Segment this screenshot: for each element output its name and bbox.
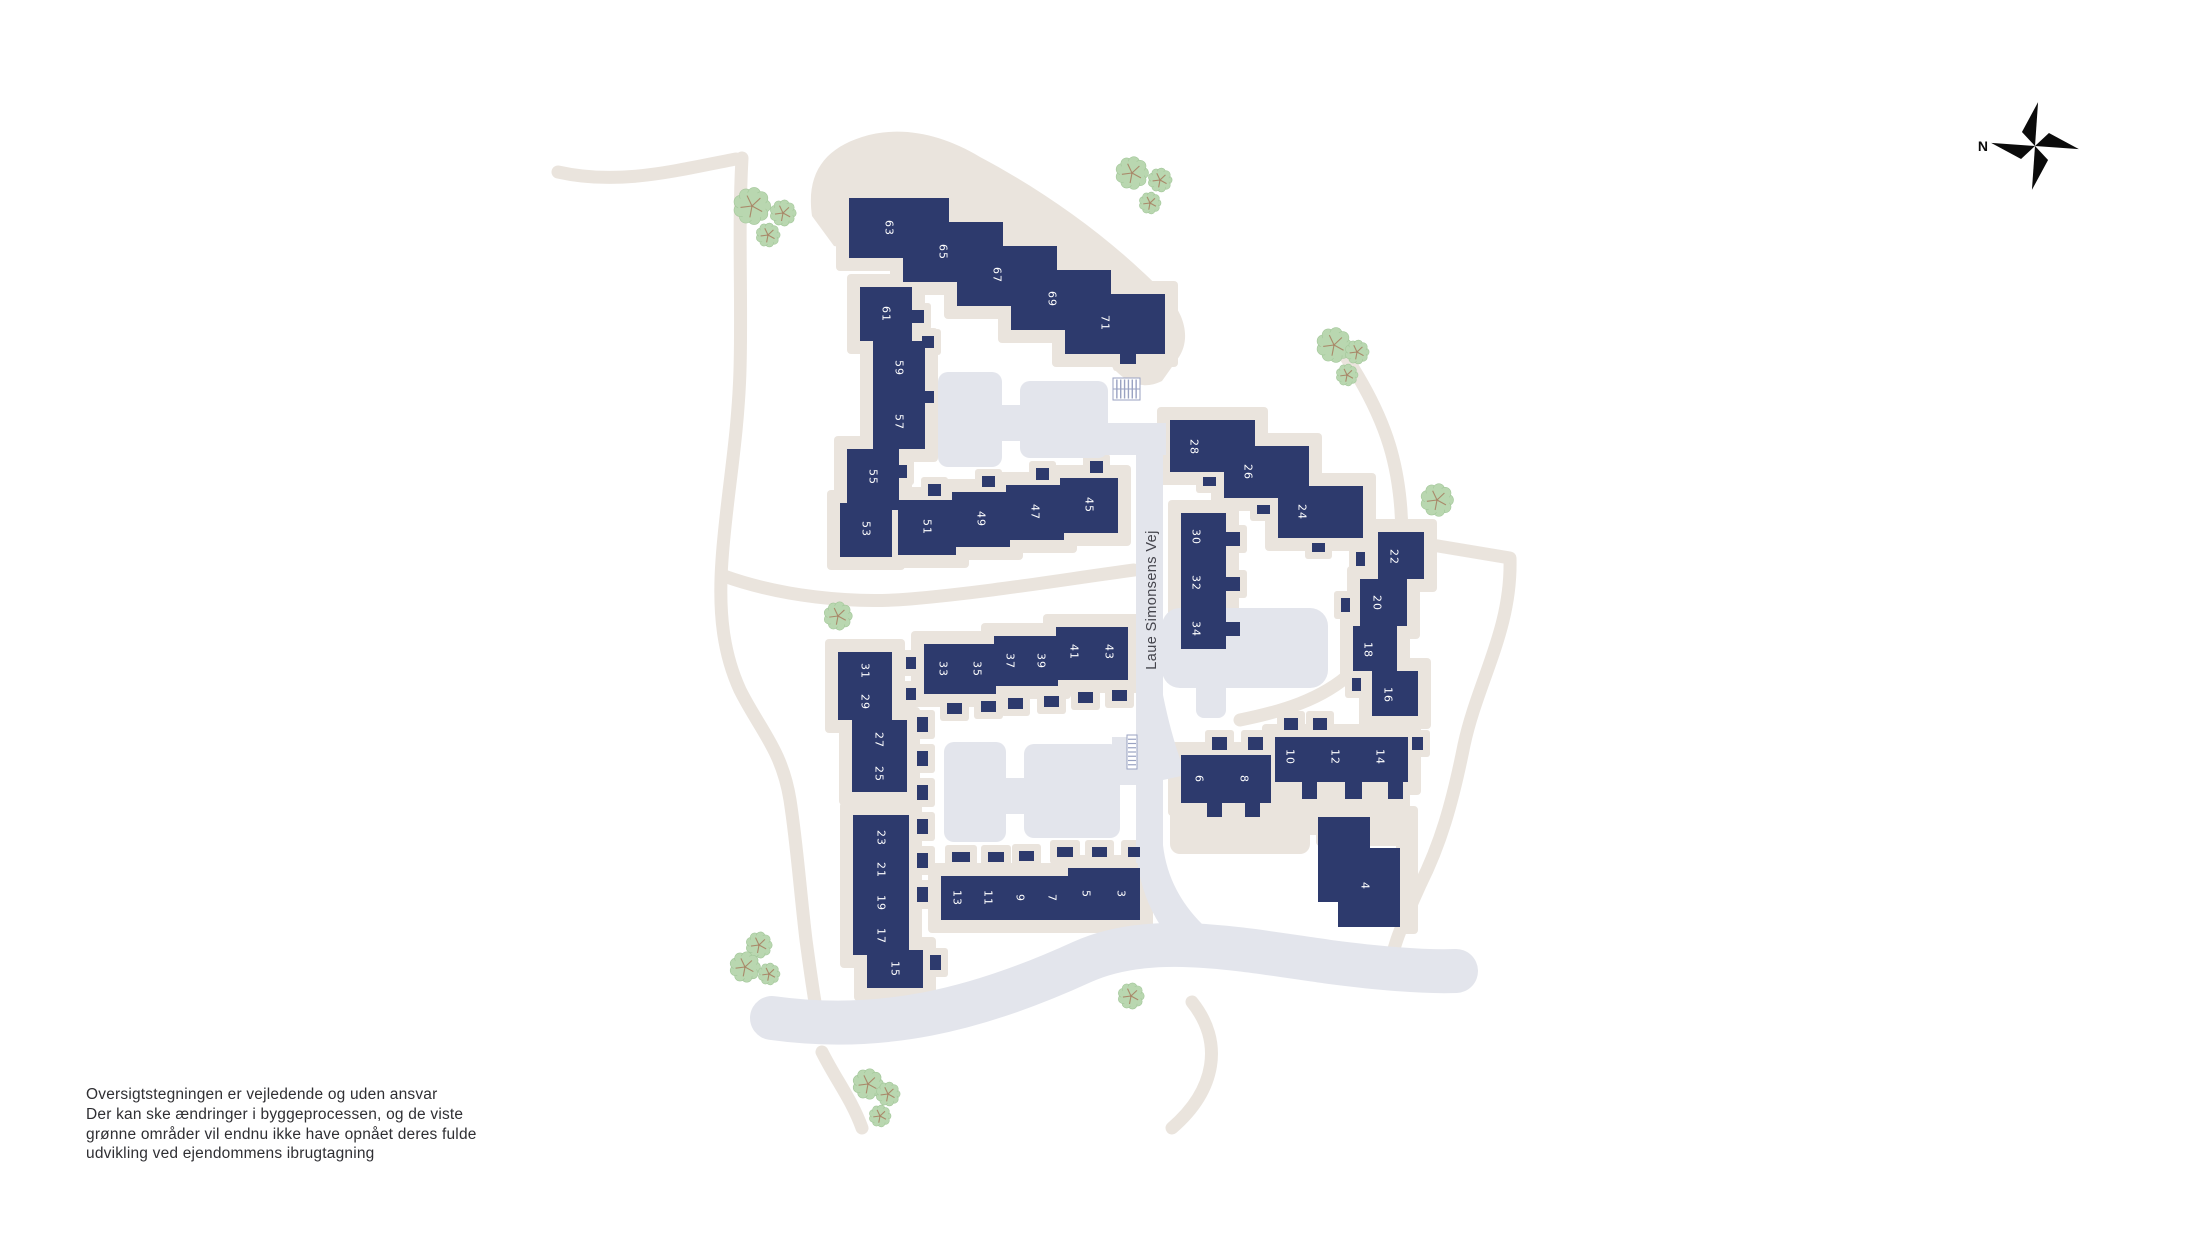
- disclaimer-line-3: grønne områder vil endnu ikke have opnåe…: [86, 1125, 477, 1145]
- building-number-5: 5: [1080, 890, 1093, 898]
- shed: [1203, 477, 1216, 486]
- building-number-24: 24: [1296, 504, 1309, 520]
- tree-icon: [1336, 364, 1358, 386]
- building-number-11: 11: [982, 890, 995, 906]
- building-number-61: 61: [880, 306, 893, 322]
- building-number-20: 20: [1371, 595, 1384, 611]
- building-number-39: 39: [1035, 653, 1048, 669]
- building-number-47: 47: [1029, 504, 1042, 520]
- shed: [1226, 532, 1240, 546]
- tree-icon: [824, 602, 852, 630]
- shed: [912, 310, 924, 323]
- building-30[interactable]: [1181, 513, 1226, 558]
- shed: [922, 336, 934, 348]
- building-number-49: 49: [975, 511, 988, 527]
- shed: [1341, 598, 1350, 612]
- building-number-15: 15: [889, 961, 902, 977]
- shed: [1008, 698, 1023, 709]
- building-number-22: 22: [1388, 549, 1401, 565]
- shed: [1092, 847, 1107, 857]
- plaza-mid-right-arm: [1196, 680, 1226, 718]
- shed: [1345, 782, 1362, 799]
- shed: [1388, 782, 1403, 799]
- shed: [982, 476, 995, 487]
- shed: [1207, 803, 1222, 817]
- building-12[interactable]: [1320, 737, 1365, 782]
- building-number-41: 41: [1068, 644, 1081, 660]
- site-plan-page: 6365676971615957555351494745282624303234…: [0, 0, 2200, 1237]
- shed: [917, 853, 928, 868]
- shed: [1012, 304, 1028, 316]
- building-number-3: 3: [1115, 890, 1128, 898]
- building-number-7: 7: [1046, 894, 1059, 902]
- building-number-25: 25: [873, 766, 886, 782]
- path-top-left: [558, 159, 736, 177]
- building-24[interactable]: [1278, 486, 1363, 538]
- disclaimer-line-4: udvikling ved ejendommens ibrugtagning: [86, 1144, 477, 1164]
- plaza-upper-left-room: [938, 372, 1002, 467]
- building-number-13: 13: [951, 890, 964, 906]
- shed: [988, 852, 1004, 862]
- shed: [1284, 718, 1298, 730]
- building-number-12: 12: [1329, 749, 1342, 765]
- building-number-32: 32: [1190, 575, 1203, 591]
- shed: [917, 751, 928, 766]
- building-number-71: 71: [1099, 315, 1112, 331]
- shed: [1356, 552, 1365, 566]
- plaza-lower: [944, 737, 1146, 842]
- building-number-37: 37: [1004, 653, 1017, 669]
- building-number-33: 33: [937, 661, 950, 677]
- building-number-35: 35: [971, 661, 984, 677]
- tree-icon: [1116, 157, 1148, 190]
- shed: [981, 701, 996, 712]
- building-number-28: 28: [1188, 439, 1201, 455]
- plaza-upper-right-room: [1020, 381, 1108, 458]
- shed: [1226, 622, 1240, 636]
- tree-icon: [756, 223, 780, 247]
- building-number-8: 8: [1238, 775, 1251, 783]
- building-number-51: 51: [921, 519, 934, 535]
- shed: [930, 955, 941, 970]
- building-number-43: 43: [1103, 644, 1116, 660]
- tree-icon: [876, 1082, 900, 1106]
- shed: [1248, 737, 1263, 750]
- shed: [947, 703, 962, 714]
- building-number-26: 26: [1242, 464, 1255, 480]
- building-number-31: 31: [859, 663, 872, 679]
- shed: [917, 785, 928, 800]
- building-number-18: 18: [1362, 642, 1375, 658]
- shed: [1212, 737, 1227, 750]
- building-number-19: 19: [875, 895, 888, 911]
- shed: [952, 852, 970, 862]
- building-number-57: 57: [893, 414, 906, 430]
- building-number-29: 29: [859, 694, 872, 710]
- building-number-30: 30: [1190, 529, 1203, 545]
- shed: [958, 280, 974, 292]
- shed: [928, 484, 941, 496]
- tree-icon: [869, 1105, 891, 1127]
- shed: [1352, 678, 1361, 691]
- disclaimer-text: Oversigtstegningen er vejledende og uden…: [86, 1085, 477, 1164]
- tree-icon: [1118, 983, 1144, 1009]
- shed: [906, 688, 916, 700]
- tree-icon: [1148, 168, 1172, 192]
- shed: [1057, 847, 1073, 857]
- building-number-16: 16: [1382, 687, 1395, 703]
- building-10[interactable]: [1275, 737, 1320, 782]
- shed: [906, 657, 916, 669]
- shed: [1302, 782, 1317, 799]
- building-number-17: 17: [875, 928, 888, 944]
- shed: [904, 256, 920, 268]
- plaza-lower-left-room: [944, 742, 1006, 842]
- shed: [1245, 803, 1260, 817]
- tree-icon: [730, 952, 760, 982]
- building-number-67: 67: [991, 267, 1004, 283]
- shed: [1226, 577, 1240, 591]
- shed: [1044, 696, 1059, 707]
- shed: [1036, 468, 1049, 480]
- building-number-59: 59: [893, 360, 906, 376]
- bike-rack-icon: [1127, 735, 1137, 769]
- shed: [1019, 851, 1034, 861]
- bike-rack-icon: [1113, 378, 1140, 400]
- building-number-9: 9: [1014, 894, 1027, 902]
- shed: [897, 465, 907, 478]
- shed: [917, 887, 928, 902]
- shed: [1128, 847, 1140, 857]
- building-number-45: 45: [1083, 497, 1096, 513]
- shed: [1066, 328, 1082, 340]
- compass-rose: N: [1975, 98, 2082, 193]
- disclaimer-line-2: Der kan ske ændringer i byggeprocessen, …: [86, 1105, 477, 1125]
- street-label: Laue Simonsens Vej: [1144, 530, 1160, 669]
- building-number-10: 10: [1284, 749, 1297, 765]
- tree-icon: [770, 200, 796, 226]
- building-number-23: 23: [875, 830, 888, 846]
- compass-star-icon: [1988, 99, 2082, 193]
- building-32[interactable]: [1181, 558, 1226, 603]
- shed: [924, 391, 934, 403]
- shed: [917, 819, 928, 834]
- building-number-21: 21: [875, 862, 888, 878]
- building-number-53: 53: [860, 521, 873, 537]
- disclaimer-line-1: Oversigtstegningen er vejledende og uden…: [86, 1085, 477, 1105]
- building-number-69: 69: [1046, 291, 1059, 307]
- building-number-27: 27: [873, 732, 886, 748]
- tree-icon: [758, 963, 780, 985]
- shed: [888, 497, 898, 510]
- path-middle-branch: [724, 570, 1134, 600]
- shed: [1120, 352, 1136, 364]
- shed: [1412, 737, 1423, 750]
- tree-icon: [1421, 484, 1453, 517]
- building-number-63: 63: [883, 220, 896, 236]
- shed: [1078, 692, 1093, 703]
- shed: [1313, 718, 1327, 730]
- shed: [1257, 505, 1270, 514]
- shed: [1112, 690, 1127, 701]
- building-34[interactable]: [1181, 603, 1226, 649]
- path-bottom-curl: [1172, 1002, 1211, 1128]
- building-number-4: 4: [1359, 882, 1372, 890]
- building-number-65: 65: [937, 244, 950, 260]
- building-number-14: 14: [1374, 749, 1387, 765]
- plaza-lower-right-room: [1024, 744, 1120, 838]
- tree-icon: [1139, 192, 1161, 214]
- site-map: 6365676971615957555351494745282624303234…: [0, 0, 2200, 1237]
- compass-north-label: N: [1978, 138, 1988, 154]
- shed: [1312, 543, 1325, 552]
- shed: [917, 717, 928, 732]
- building-71[interactable]: [1065, 294, 1165, 354]
- building-number-34: 34: [1190, 621, 1203, 637]
- shed: [1090, 461, 1103, 473]
- building-number-55: 55: [867, 469, 880, 485]
- tree-icon: [1345, 340, 1369, 364]
- building-number-6: 6: [1193, 775, 1206, 783]
